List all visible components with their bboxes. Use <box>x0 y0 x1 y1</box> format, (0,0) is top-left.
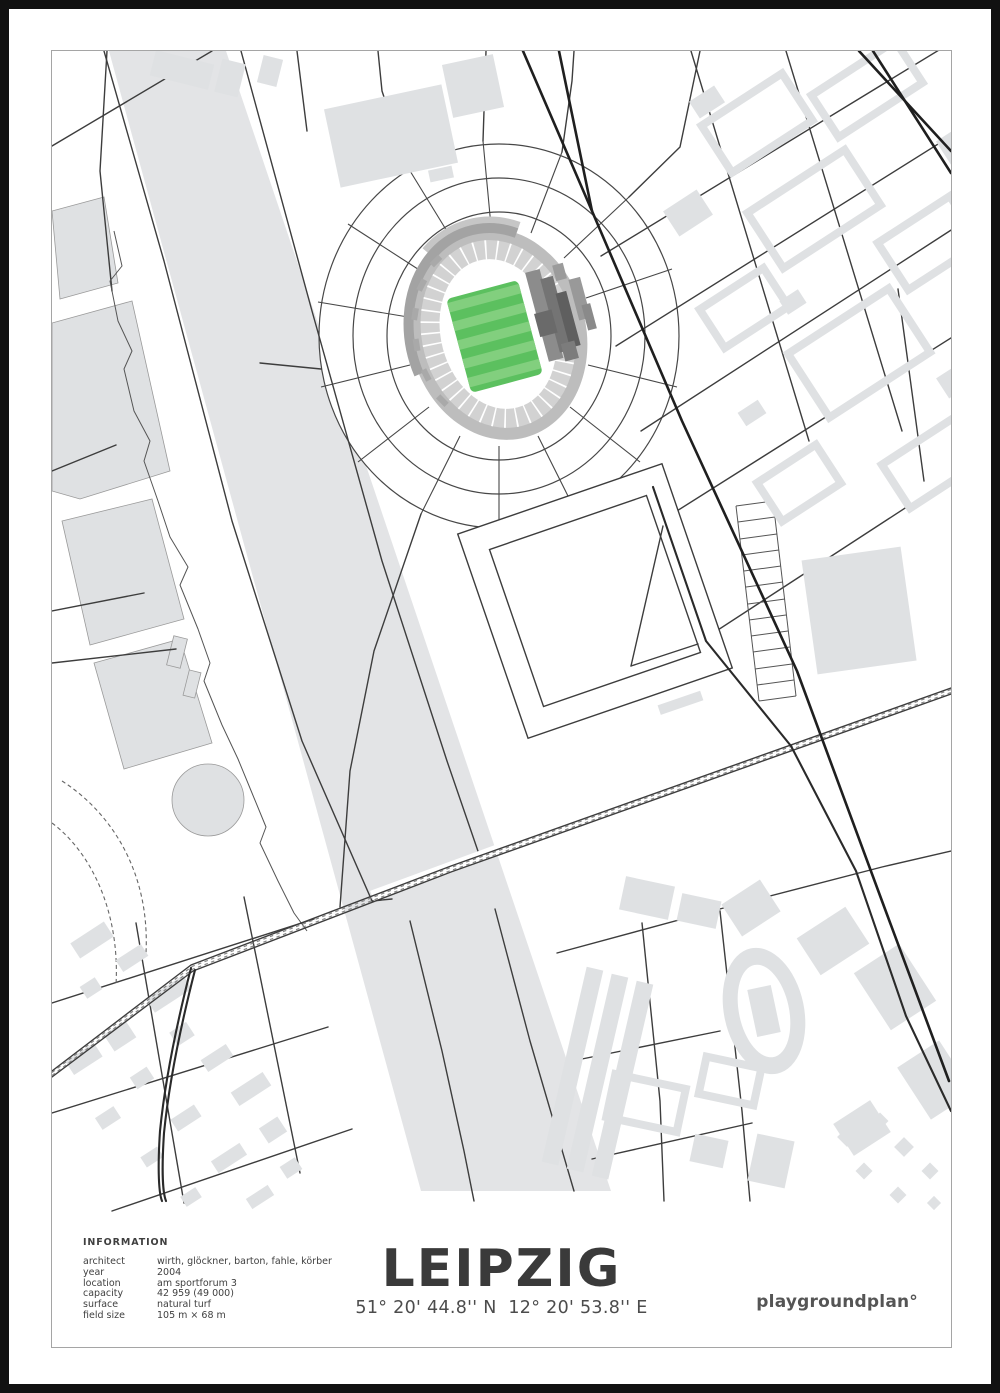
city-map-graphic <box>52 51 951 1347</box>
city-title: LEIPZIG <box>52 1239 951 1299</box>
poster: INFORMATION architectwirth, glöckner, ba… <box>0 0 1000 1393</box>
brand-logo: playgroundplan° <box>756 1292 918 1312</box>
park-circle <box>172 764 244 836</box>
large-block <box>802 547 917 675</box>
map-panel: INFORMATION architectwirth, glöckner, ba… <box>51 50 952 1348</box>
